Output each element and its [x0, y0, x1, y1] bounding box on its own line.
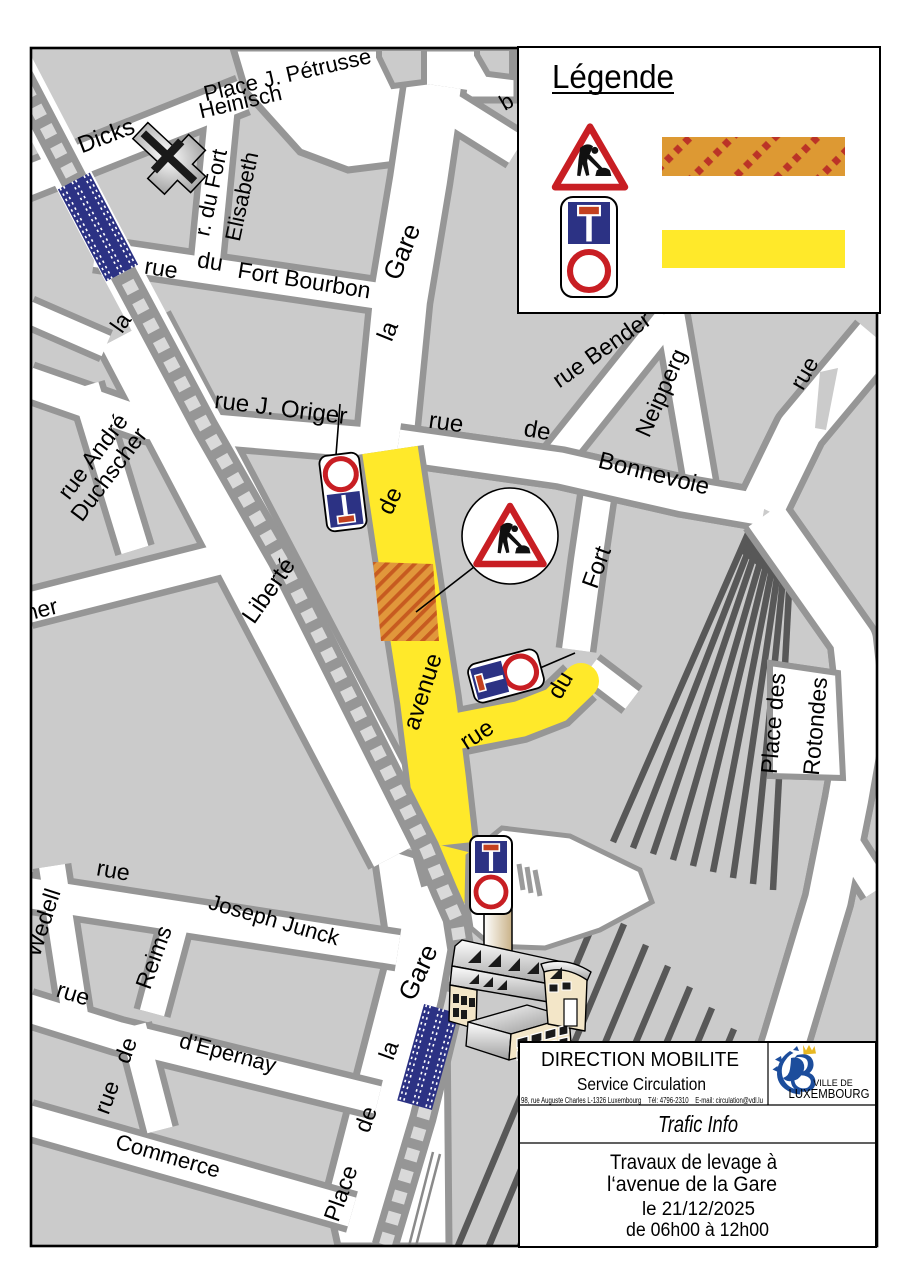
svg-text:98, rue Auguste Charles L-1326: 98, rue Auguste Charles L-1326 Luxembour… [521, 1096, 763, 1105]
svg-text:rue: rue [143, 253, 180, 284]
svg-text:le 21/12/2025: le 21/12/2025 [642, 1199, 755, 1220]
svg-text:du: du [196, 246, 225, 276]
svg-text:LUXEMBOURG: LUXEMBOURG [789, 1086, 870, 1101]
svg-text:rue: rue [427, 407, 465, 439]
svg-text:de 06h00 à 12h00: de 06h00 à 12h00 [626, 1220, 769, 1241]
svg-text:Service Circulation: Service Circulation [577, 1074, 706, 1094]
svg-text:DIRECTION MOBILITE: DIRECTION MOBILITE [541, 1048, 739, 1071]
svg-text:Travaux de levage à: Travaux de levage à [610, 1151, 777, 1174]
svg-text:Légende: Légende [552, 58, 674, 95]
svg-text:de: de [522, 415, 553, 446]
svg-text:Trafic Info: Trafic Info [658, 1111, 738, 1137]
svg-text:l‘avenue de la Gare: l‘avenue de la Gare [607, 1173, 777, 1196]
